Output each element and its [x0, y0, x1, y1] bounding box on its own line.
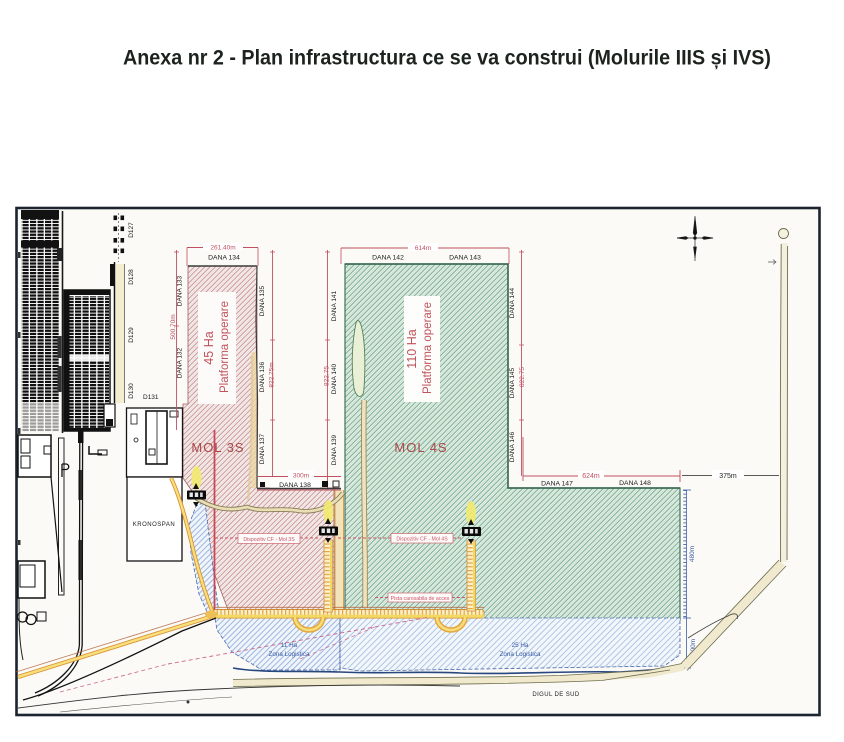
svg-text:DANA 148: DANA 148 [619, 480, 651, 487]
svg-text:Platforma operare: Platforma operare [219, 301, 231, 393]
svg-text:480m: 480m [689, 546, 696, 562]
svg-text:110 Ha: 110 Ha [405, 329, 419, 368]
svg-text:D131: D131 [143, 394, 159, 401]
svg-text:624m: 624m [582, 473, 600, 480]
svg-text:Zona Logistica: Zona Logistica [500, 651, 541, 658]
svg-text:822.75m: 822.75m [269, 362, 276, 387]
svg-text:DANA 147: DANA 147 [541, 481, 573, 488]
svg-text:DANA 137: DANA 137 [259, 433, 266, 464]
svg-text:500.70m: 500.70m [170, 314, 177, 339]
svg-text:11 Ha: 11 Ha [281, 642, 298, 649]
svg-text:DANA 145: DANA 145 [509, 367, 516, 398]
svg-text:614m: 614m [415, 245, 431, 252]
svg-text:DANA 140: DANA 140 [331, 363, 338, 394]
svg-text:DANA 133: DANA 133 [177, 275, 184, 306]
svg-text:DANA 135: DANA 135 [259, 285, 266, 316]
svg-text:DANA 132: DANA 132 [177, 347, 184, 378]
svg-text:45 Ha: 45 Ha [202, 331, 216, 364]
svg-text:DIGUL DE SUD: DIGUL DE SUD [532, 692, 580, 698]
svg-text:300m: 300m [293, 473, 309, 480]
svg-text:Dispozitiv CF - Mol 4S: Dispozitiv CF - Mol 4S [396, 537, 448, 543]
svg-text:KRONOSPAN: KRONOSPAN [133, 522, 175, 528]
svg-text:D130: D130 [128, 383, 135, 399]
svg-text:Dispozitiv CF - Mol 3S: Dispozitiv CF - Mol 3S [243, 537, 295, 543]
svg-text:DANA 134: DANA 134 [208, 255, 240, 262]
svg-text:822.75: 822.75 [519, 367, 526, 387]
svg-text:Pista carosabila de acces: Pista carosabila de acces [391, 596, 450, 602]
svg-text:DANA 144: DANA 144 [509, 287, 516, 318]
svg-text:Anexa nr 2 - Plan infrastructu: Anexa nr 2 - Plan infrastructura ce se v… [123, 46, 771, 70]
svg-text:MOL 3S: MOL 3S [191, 440, 244, 455]
svg-text:DANA 142: DANA 142 [372, 255, 404, 262]
svg-text:822.75: 822.75 [324, 366, 331, 386]
svg-text:261.40m: 261.40m [210, 245, 235, 252]
svg-text:MOL 4S: MOL 4S [394, 440, 447, 455]
svg-text:D127: D127 [128, 222, 135, 238]
svg-text:D129: D129 [128, 327, 135, 343]
svg-text:DANA 136: DANA 136 [259, 361, 266, 392]
svg-text:DANA 141: DANA 141 [331, 290, 338, 321]
svg-text:DANA 146: DANA 146 [509, 431, 516, 462]
svg-text:375m: 375m [719, 473, 737, 480]
svg-text:DANA 143: DANA 143 [449, 255, 481, 262]
svg-text:Platforma operare: Platforma operare [422, 302, 434, 394]
svg-text:D128: D128 [128, 269, 135, 285]
svg-text:DANA 139: DANA 139 [331, 434, 338, 465]
svg-text:25 Ha: 25 Ha [512, 642, 529, 649]
svg-text:Zona Logistica: Zona Logistica [269, 651, 310, 658]
